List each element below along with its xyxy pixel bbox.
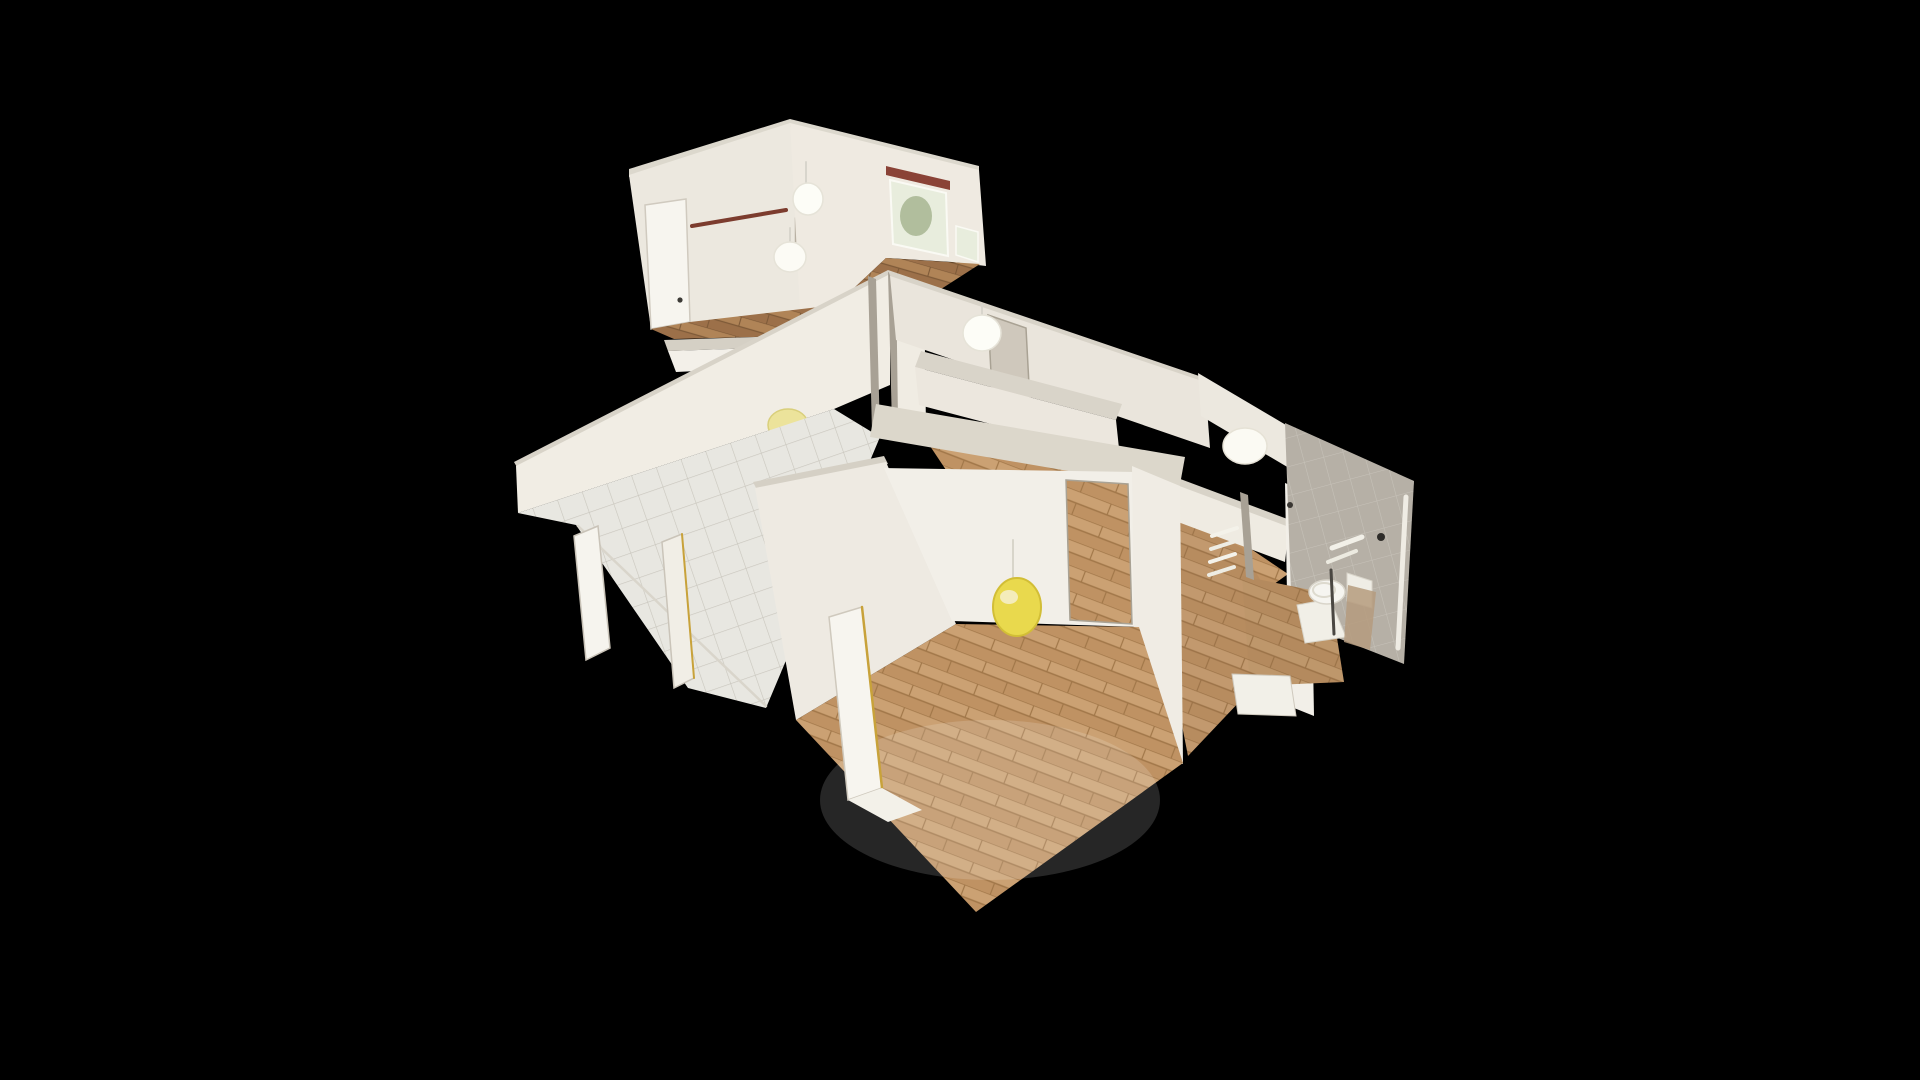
hall-pendant-lamp	[963, 315, 1001, 351]
room1-window-1-greenery	[900, 196, 932, 236]
living-doorway-opening	[1066, 480, 1132, 624]
room1-door	[645, 199, 690, 329]
dollhouse-3d-viewport[interactable]	[0, 0, 1920, 1080]
living-pendant-highlight	[1000, 590, 1018, 604]
doorway-pendant-lamp	[774, 242, 806, 272]
living-pendant-lamp	[993, 578, 1041, 636]
bathroom-wall-dot-2	[1287, 502, 1293, 508]
bathroom-tub-fragment	[1232, 674, 1296, 716]
bathroom-ceiling-lamp	[1223, 428, 1267, 464]
room1-door-handle	[677, 297, 682, 302]
bathroom-wall-dot-1	[1377, 533, 1385, 541]
screenshot-root	[0, 0, 1920, 1080]
room1-window-2	[956, 226, 978, 262]
room1-pendant-lamp	[793, 183, 823, 215]
